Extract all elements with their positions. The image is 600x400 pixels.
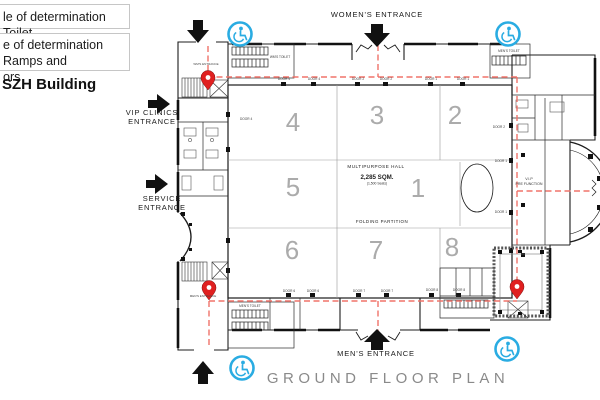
door-label: DOOR 4 [308, 77, 320, 81]
womens-entrance-label: WOMEN'S ENTRANCE [331, 10, 423, 19]
accessible-route-path [207, 45, 593, 345]
interior-partitions [178, 44, 595, 348]
door-label: DOOR 1 [495, 210, 507, 214]
door-label: DOOR 2 [493, 125, 505, 129]
vip-entrance-label-1: VIP CLINICS [126, 108, 178, 117]
womens-entrance-arrow-icon [364, 24, 390, 47]
door-label: DOOR 2 [380, 77, 392, 81]
legend-item-ramps: e of determination Ramps and ors [0, 33, 130, 71]
service-entrance-label-1: SERVICE [143, 194, 181, 203]
door-label: DOOR 8 [426, 288, 438, 292]
stairs-and-lifts [182, 78, 528, 318]
door-label: DOOR 4 [278, 77, 290, 81]
room-number-7: 7 [369, 235, 383, 265]
door-label: DOOR 7 [353, 289, 365, 293]
door-label: DOOR 1 [425, 77, 437, 81]
door-label: DOOR 4 [240, 117, 252, 121]
vip-entrance-label-2: ENTRANCE [128, 117, 176, 126]
service-entrance-label-2: ENTRANCE [138, 203, 186, 212]
toilet-label-top-left: WM'S TOILET [270, 55, 290, 59]
legend-item-ramps-text-1: e of determination Ramps and [3, 37, 129, 69]
stage-platform [461, 164, 493, 212]
floor-plan-page: le of determination Toilet e of determin… [0, 0, 600, 400]
mens-entrance-label: MEN'S ENTRANCE [337, 349, 415, 358]
toilet-label-top-right: MEN'S TOILET [498, 49, 520, 53]
toilet-label-bottom-left: MEN'S TOILET [239, 304, 261, 308]
vip-prefunction-label-1: V.I.P [525, 177, 533, 181]
folding-partition-label: FOLDING PARTITION [356, 219, 408, 224]
door-label: DOOR 1 [457, 77, 469, 81]
room-number-1: 1 [411, 173, 425, 203]
mn-entrance-small-label: MEN'S ENTRANCE [190, 294, 217, 298]
door-marks [181, 82, 600, 297]
door-label: DOOR 8 [453, 288, 465, 292]
wheelchair-icon [231, 357, 254, 380]
bottom-left-entrance-arrow-icon [192, 361, 214, 384]
hall-area-label: 2,285 SQM. [360, 174, 393, 181]
service-entrance-arrow-icon [146, 174, 168, 194]
door-label: DOOR 6 [283, 289, 295, 293]
accessibility-icons [229, 23, 520, 380]
room-number-8: 8 [445, 232, 459, 262]
top-left-entrance-arrow-icon [187, 20, 209, 43]
room-number-4: 4 [286, 107, 300, 137]
door-label: DOOR 6 [307, 289, 319, 293]
plan-title: GROUND FLOOR PLAN [267, 370, 509, 387]
wheelchair-icon [496, 338, 519, 361]
wheelchair-icon [229, 23, 252, 46]
door-label: DOOR 1 [495, 159, 507, 163]
hall-seats-label: (1,500 Seats) [367, 182, 387, 186]
vip-prefunction-label-2: PRE FUNCTION [516, 182, 543, 186]
wm-entrance-small-label: WM'S ENTRANCE [193, 62, 218, 66]
room-number-5: 5 [286, 172, 300, 202]
building-title: SZH Building [2, 76, 96, 93]
room-number-6: 6 [285, 235, 299, 265]
hall-name-label: MULTIPURPOSE HALL [347, 164, 404, 169]
legend-item-toilet: le of determination Toilet [0, 4, 130, 29]
room-number-2: 2 [448, 100, 462, 130]
door-label: DOOR 7 [381, 289, 393, 293]
mens-entrance-arrow-icon [364, 329, 390, 350]
door-label: DOOR 2 [352, 77, 364, 81]
wall-segments [178, 44, 595, 348]
wheelchair-icon [497, 23, 520, 46]
location-pins [201, 71, 524, 301]
room-number-3: 3 [370, 100, 384, 130]
